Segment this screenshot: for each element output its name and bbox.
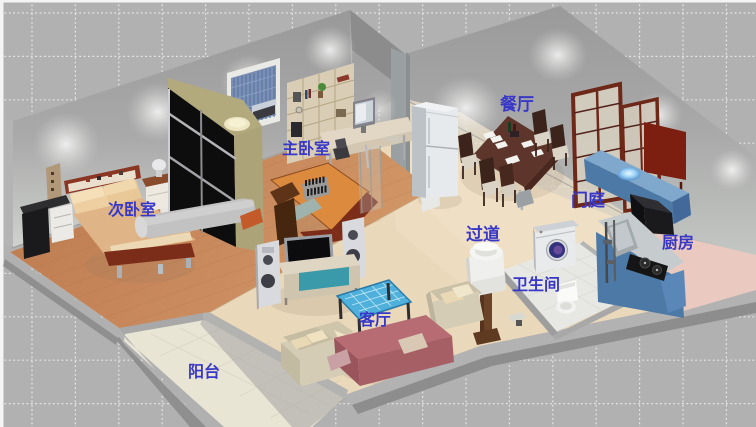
svg-text:次卧室: 次卧室 (108, 200, 156, 219)
svg-text:主卧室: 主卧室 (282, 139, 330, 158)
svg-text:阳台: 阳台 (188, 362, 220, 381)
svg-text:餐厅: 餐厅 (500, 94, 534, 114)
svg-text:卫生间: 卫生间 (512, 275, 560, 294)
svg-text:厨房: 厨房 (662, 233, 694, 252)
svg-text:客厅: 客厅 (359, 310, 391, 329)
svg-text:过道: 过道 (466, 224, 500, 244)
svg-text:门庭: 门庭 (571, 190, 605, 210)
